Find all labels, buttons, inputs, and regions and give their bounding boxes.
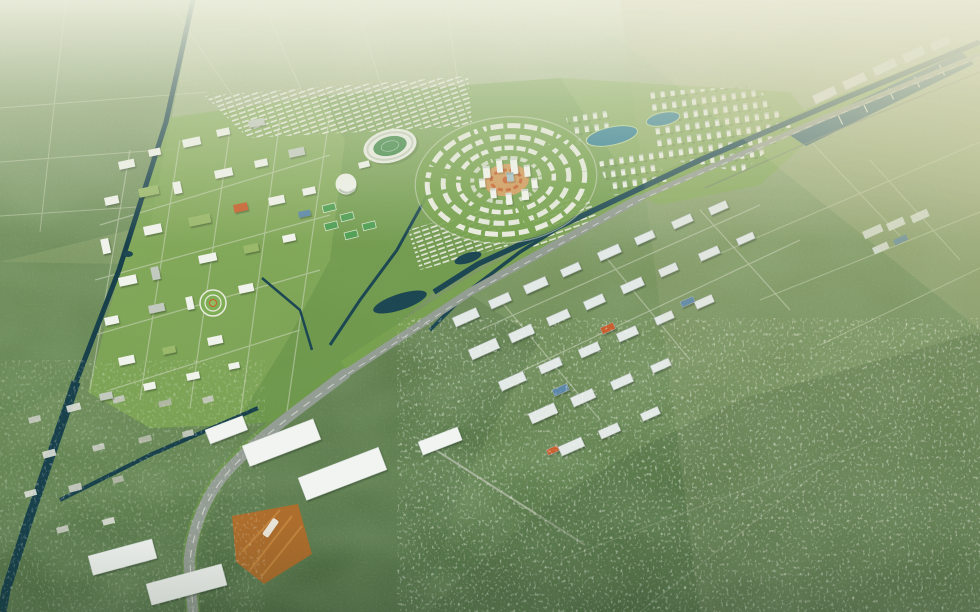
screenshot: [0, 0, 980, 612]
atmospheric-haze: [0, 0, 980, 612]
render-grain: [0, 0, 980, 612]
aerial-city-render-svg: [0, 0, 980, 612]
